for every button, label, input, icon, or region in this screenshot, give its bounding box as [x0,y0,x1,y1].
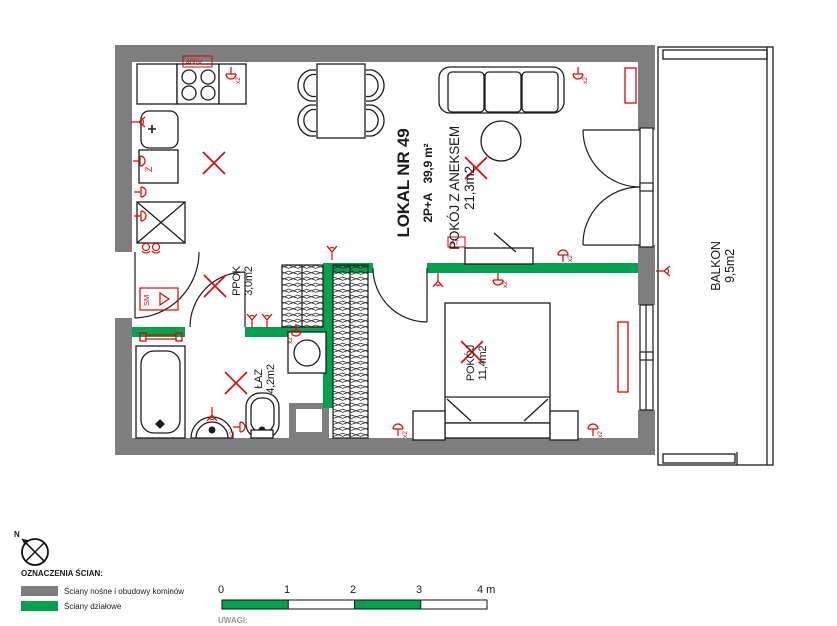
floor-plan-drawing: 400V SM AT Z x2 x2 x2 x2 x2 x2 x2 x2 [0,0,837,626]
ventilation-shaft-icon [137,202,185,243]
svg-text:x2: x2 [597,431,604,438]
washbasin [191,417,233,438]
nightstand-right [550,411,578,440]
scale-tick-2: 2 [350,584,356,596]
kitchen-fixtures [137,64,246,243]
legend-item-load-bearing: Ściany nośne i obudowy kominów [64,587,184,596]
svg-text:Z: Z [144,166,154,172]
dining-set [298,64,384,138]
nightstand-left [413,411,445,440]
wall-lamp-icon [262,314,272,328]
socket-icon [134,187,146,197]
unit-type-area: 2P+A 39,9 m² [421,108,437,258]
shaft-opening [296,409,322,432]
compass-icon [22,539,48,565]
scale-tick-1: 1 [284,584,290,596]
bedroom-window [640,305,653,410]
scale-tick-3: 3 [416,584,422,596]
stove [177,64,219,104]
scale-tick-0: 0 [218,584,224,596]
room-label-ppok: PPOK 3,0m2 [231,246,255,316]
balcony-door [583,128,653,247]
bed [445,303,550,438]
radiator-bedroom [618,322,628,392]
partition-walls [132,263,638,408]
scale-bar [222,600,487,609]
floor-plan-page: 400V SM AT Z x2 x2 x2 x2 x2 x2 x2 x2 [0,0,837,626]
kitchen-sink [141,111,178,148]
svg-text:x2: x2 [229,431,236,438]
legend-swatch-partition [21,601,58,611]
room-label-laz: ŁAZ 4,2m2 [253,344,277,414]
compass-north-label: N [14,530,20,539]
wall-lamp-icon [433,273,443,287]
radiators [140,68,636,392]
doorbell-icon [142,244,160,254]
socket-icon [233,422,245,432]
room-label-balkon: BALKON 9,5m2 [709,226,737,306]
legend-swatches [21,586,58,611]
dining-table [317,64,365,138]
ceiling-light-icon [203,152,225,174]
legend-item-partition: Ściany działowe [64,602,121,611]
legend-heading: OZNACZENIA ŚCIAN: [21,569,103,578]
smoke-detector-label: SM [142,295,151,306]
svg-text:x2: x2 [287,337,294,344]
coffee-table [481,121,521,161]
radiator-living [625,68,636,103]
bedroom-door [373,268,427,322]
ceiling-light-icon [225,372,247,394]
entrance-door [135,252,199,318]
wall-lamp-icon [247,314,257,328]
legend-swatch-load-bearing [21,586,58,596]
notes-heading: UWAGI: [218,616,248,625]
unit-title: LOKAL NR 49 [394,108,416,258]
dishwasher [139,150,178,183]
bathtub [136,346,185,438]
svg-text:x2: x2 [567,255,574,262]
svg-text:x2: x2 [235,77,242,84]
load-bearing-walls [115,45,655,455]
bedroom-furniture [413,303,578,440]
room-label-aneks: POKÓJ Z ANEKSEM 21,3m2 [447,103,477,273]
svg-text:x2: x2 [502,281,509,288]
kitchen-counter [137,64,177,104]
svg-text:x2: x2 [402,431,409,438]
svg-text:x2: x2 [582,77,589,84]
ceiling-light-icon [204,275,226,297]
room-label-pokoj: POKÓJ 11,4m2 [465,328,489,398]
scale-tick-4: 4 m [477,584,495,596]
stove-power-label: 400V [186,60,203,67]
wall-lamp-icon [327,246,337,260]
